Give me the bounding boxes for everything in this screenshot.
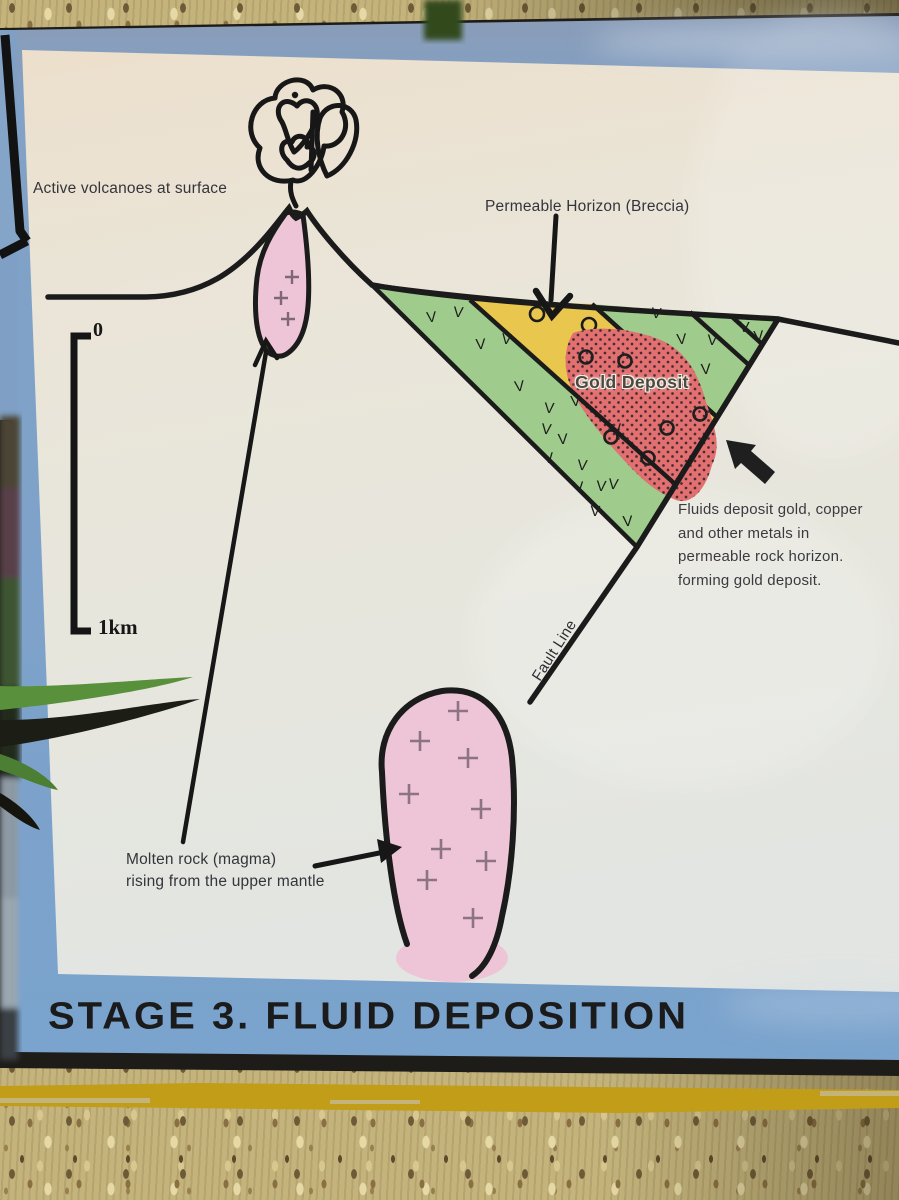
volcanic-rock-symbol: V — [573, 479, 584, 497]
volcanic-rock-symbol: V — [543, 450, 555, 468]
background-dark-patch — [424, 0, 462, 40]
volcanic-rock-symbol: V — [700, 361, 711, 379]
scale-label-zero: 0 — [93, 319, 103, 342]
volcanic-rock-symbol: V — [544, 400, 555, 418]
fluids-note-line: forming gold deposit. — [678, 569, 863, 593]
fluids-note-line: and other metals in — [678, 522, 863, 546]
volcanic-rock-symbol: V — [475, 336, 486, 354]
volcanic-rock-symbol: V — [590, 503, 601, 521]
permeable-horizon-label: Permeable Horizon (Breccia) — [485, 195, 689, 218]
volcanic-rock-symbol: V — [596, 478, 607, 496]
volcanic-rock-symbol: V — [426, 309, 438, 327]
volcanic-rock-symbol: V — [453, 304, 464, 322]
volcanic-rock-symbol: V — [611, 421, 622, 439]
photo-of-geology-sign: { "sign": { "title": "STAGE 3. FLUID DEP… — [0, 0, 899, 1200]
gold-deposit-label: Gold Deposit — [575, 371, 689, 394]
molten-rock-note: Molten rock (magma) rising from the uppe… — [126, 849, 325, 893]
volcanic-rock-symbol: V — [541, 421, 553, 439]
molten-rock-note-line: rising from the upper mantle — [126, 871, 325, 893]
volcanic-rock-symbol: V — [622, 513, 633, 531]
volcanic-rock-symbol: V — [739, 319, 750, 337]
active-volcanoes-label: Active volcanoes at surface — [33, 177, 227, 200]
scale-label-1km: 1km — [98, 615, 138, 640]
volcanic-rock-symbol: V — [557, 431, 568, 449]
molten-rock-note-line: Molten rock (magma) — [126, 849, 325, 871]
stage-title: STAGE 3. FLUID DEPOSITION — [48, 995, 848, 1038]
volcanic-rock-symbol: V — [753, 328, 764, 346]
volcanic-rock-symbol: V — [608, 476, 620, 494]
volcanic-rock-symbol: V — [501, 330, 513, 348]
volcanic-rock-symbol: V — [707, 332, 718, 350]
volcanic-rock-symbol: V — [676, 331, 687, 349]
volcanic-rock-symbol: V — [577, 457, 588, 475]
fluids-note-line: Fluids deposit gold, copper — [678, 498, 863, 522]
volcanic-rock-symbol: V — [570, 393, 581, 411]
fluids-note-line: permeable rock horizon. — [678, 545, 863, 569]
volcanic-rock-symbol: V — [513, 377, 525, 395]
fluids-note: Fluids deposit gold, copper and other me… — [678, 498, 863, 592]
